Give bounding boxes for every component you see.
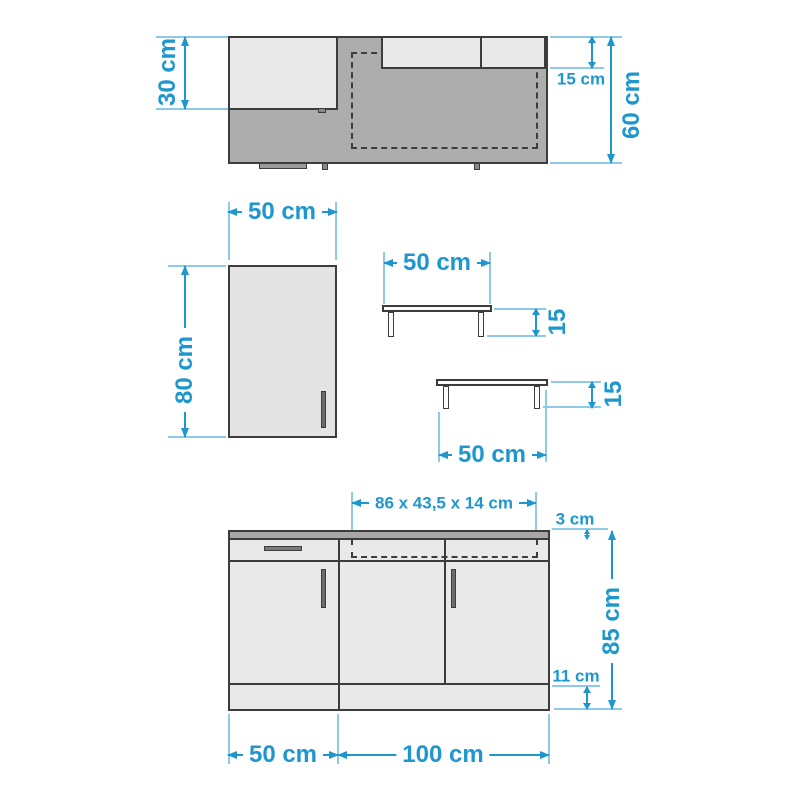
extension-line (351, 492, 353, 530)
shelf-upper-height-dimension (535, 309, 537, 336)
plan-depth-label: 60 cm (620, 71, 644, 139)
shelf-lower-bracket (534, 386, 540, 409)
base-unit-drawer-line (230, 560, 548, 562)
base-unit-plinth-line (230, 683, 548, 685)
plan-shelf-left (381, 36, 482, 69)
plan-shelf-depth-dimension (591, 37, 593, 68)
shelf-lower-height-dimension (591, 382, 593, 408)
wall-cabinet-width-label: 50 cm (242, 200, 322, 224)
plan-foot-mark (322, 163, 328, 170)
plan-hinge-mark (318, 108, 326, 113)
extension-line (168, 265, 226, 267)
shelf-lower-width-label: 50 cm (452, 443, 532, 467)
base-unit-divider-left (338, 540, 340, 709)
base-unit-door-handle-right (451, 569, 456, 608)
shelf-upper-height-label: 15 (546, 309, 570, 336)
wall-cabinet-height-label: 80 cm (173, 328, 197, 412)
plan-depth-dimension (610, 37, 612, 163)
shelf-upper-board (382, 305, 492, 312)
plan-shelf-depth-label: 15 cm (557, 71, 605, 88)
base-right-width-label: 100 cm (396, 743, 489, 767)
shelf-upper-bracket (388, 312, 394, 337)
base-unit-height-label: 85 cm (600, 579, 624, 663)
plan-handle-bar (259, 163, 307, 169)
dimension-diagram: 30 cm 15 cm 60 cm 50 cm 80 cm 50 cm 15 1… (0, 0, 800, 800)
shelf-lower-board (436, 379, 548, 386)
plan-shelf-right (480, 36, 546, 69)
plan-left-depth-dimension (184, 37, 186, 109)
extension-line (535, 492, 537, 530)
shelf-lower-bracket (443, 386, 449, 409)
base-unit-divider-right (444, 540, 446, 684)
worktop-thickness-dimension (586, 530, 588, 539)
worktop-thickness-label: 3 cm (556, 511, 595, 528)
base-left-width-label: 50 cm (243, 743, 323, 767)
base-unit-door-handle-left (321, 569, 326, 608)
shelf-lower-height-label: 15 (602, 381, 626, 408)
extension-line (156, 108, 228, 110)
plan-wall-cabinet (228, 36, 338, 110)
wall-cabinet-handle (321, 391, 326, 428)
base-unit-appliance-outline-dashed (351, 539, 538, 558)
plinth-height-label: 11 cm (552, 668, 599, 685)
extension-line (168, 436, 226, 438)
appliance-label: 86 x 43,5 x 14 cm (369, 495, 519, 512)
base-unit-drawer-handle (264, 546, 302, 551)
shelf-upper-width-label: 50 cm (397, 251, 477, 275)
plan-foot-mark (474, 163, 480, 170)
shelf-upper-bracket (478, 312, 484, 337)
plan-left-depth-label: 30 cm (156, 38, 180, 106)
plinth-height-dimension (586, 687, 588, 709)
